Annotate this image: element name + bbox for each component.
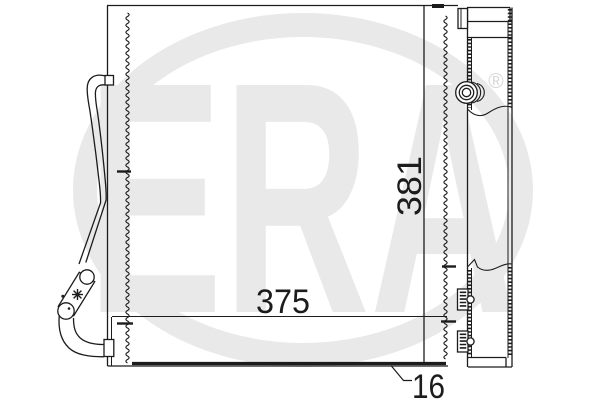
connector-lower-ring xyxy=(58,303,74,319)
depth-dimension-label: 16 xyxy=(412,368,445,400)
width-dimension-label: 375 xyxy=(256,283,310,321)
lower-pipe-port xyxy=(104,340,114,357)
condenser-technical-drawing: ERA ® xyxy=(0,0,600,400)
connector-dot-left xyxy=(61,295,64,298)
drier-top-bracket xyxy=(458,9,468,29)
height-dimension-label: 381 xyxy=(391,156,429,216)
registered-trademark-icon: ® xyxy=(488,70,504,93)
era-watermark-logo: ERA ® xyxy=(85,13,521,382)
connector-bolt-icon xyxy=(72,289,83,300)
connector-upper-ring xyxy=(80,270,94,284)
connector-dot-lower xyxy=(68,307,71,310)
watermark-brand-text: ERA xyxy=(87,13,517,382)
upper-pipe-port xyxy=(105,76,114,86)
